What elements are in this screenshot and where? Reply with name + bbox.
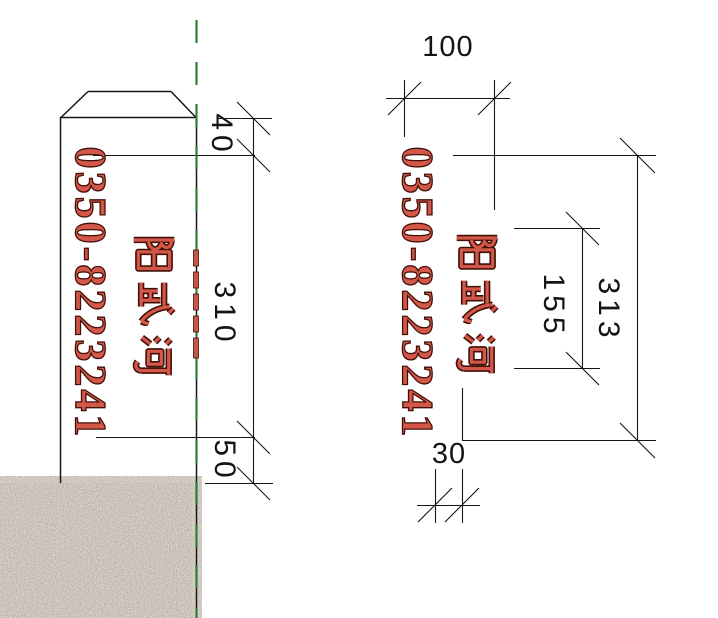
cap-right-bevel (171, 92, 196, 118)
ground-hatch (0, 483, 192, 618)
char-yang (131, 228, 177, 274)
river-name-elevation (131, 228, 177, 378)
char-he (454, 330, 500, 376)
dim-label-100: 100 (403, 32, 493, 62)
dim-label-30: 30 (419, 440, 479, 468)
char-yang (454, 226, 500, 272)
phone-number-elevation: 0350-8223241 (69, 143, 113, 443)
river-name-side (454, 226, 500, 376)
char-he (131, 332, 177, 378)
phone-number-side: 0350-8223241 (396, 143, 440, 443)
char-wu (131, 280, 177, 326)
dim-label-155: 155 (538, 261, 568, 351)
dim-label-50: 50 (209, 431, 239, 491)
dim-label-310: 310 (209, 269, 239, 359)
char-wu (454, 278, 500, 324)
cap-left-bevel (61, 92, 88, 118)
cad-drawing-canvas: 40 310 50 100 155 313 30 0350-8223241 03… (0, 0, 718, 618)
dim-label-313: 313 (593, 265, 623, 355)
clipped-text-slivers (194, 250, 199, 358)
dim-label-40: 40 (206, 109, 236, 161)
